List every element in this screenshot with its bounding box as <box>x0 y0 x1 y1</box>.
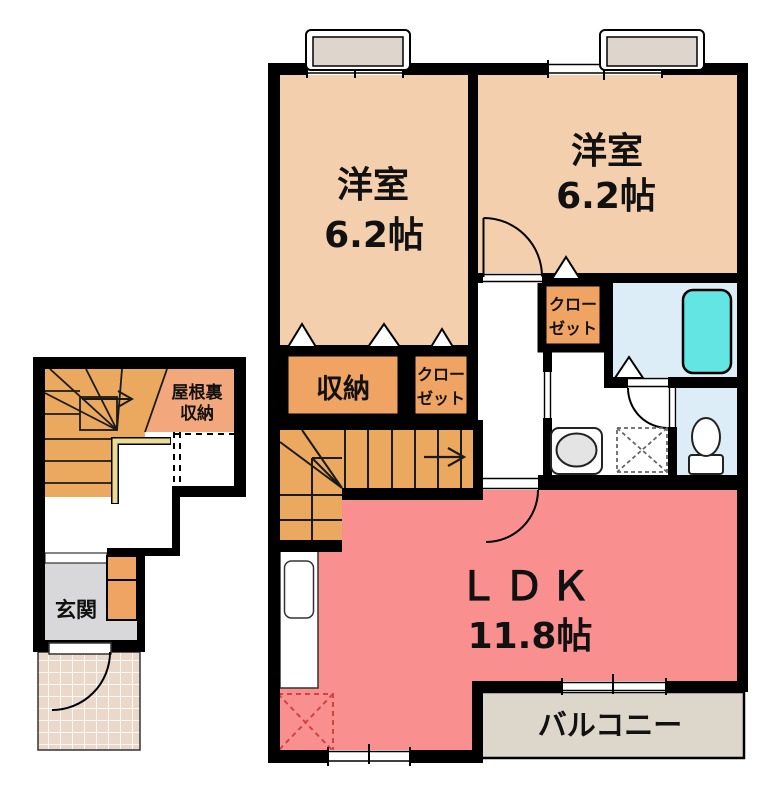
bedroom-left-floor <box>280 75 468 345</box>
bathtub <box>683 290 731 373</box>
storage-label: 収納 <box>316 373 370 405</box>
bedroom-left-size-label: 6.2帖 <box>324 215 424 256</box>
bedroom-right-floor <box>478 75 737 273</box>
closet-left-box <box>411 352 471 418</box>
attic-storage-label-line2: 収納 <box>180 403 214 424</box>
washbasin <box>551 428 602 474</box>
bedroom-left-name-label: 洋室 <box>337 165 409 206</box>
ldk-size-label: 11.8帖 <box>468 616 593 657</box>
bedroom-right-size-label: 6.2帖 <box>556 176 656 217</box>
kitchen-sink <box>285 561 314 618</box>
entrance-label: 玄関 <box>55 598 97 622</box>
floor-plan-canvas: 洋室 6.2帖 洋室 6.2帖 ＬＤＫ 11.8帖 収納 クロー ゼット クロー… <box>0 0 776 800</box>
balcony-label: バルコニー <box>538 708 682 742</box>
door-toilet-opening <box>668 388 677 427</box>
door-washroom-opening <box>543 372 552 418</box>
window-box-right <box>600 30 704 70</box>
closet-right-label-line1: クロー <box>549 295 597 314</box>
entrance-porch <box>38 652 140 750</box>
window-box-left <box>306 30 410 70</box>
closet-right-box <box>542 282 604 348</box>
closet-left-label-line2: ゼット <box>417 389 465 408</box>
closet-right-label-line2: ゼット <box>549 319 597 338</box>
entrance-step-edge <box>45 553 107 563</box>
attic-storage-label-line1: 屋根裏 <box>172 382 224 403</box>
entrance-step-upper <box>107 556 137 580</box>
toilet <box>689 418 723 474</box>
floor-plan-page: 洋室 6.2帖 洋室 6.2帖 ＬＤＫ 11.8帖 収納 クロー ゼット クロー… <box>0 0 776 800</box>
bedroom-right-name-label: 洋室 <box>571 131 643 172</box>
entrance-step-lower <box>107 580 137 620</box>
closet-left-label-line1: クロー <box>417 365 465 384</box>
ldk-name-label: ＬＤＫ <box>458 564 596 610</box>
kitchen-counter <box>280 548 318 688</box>
